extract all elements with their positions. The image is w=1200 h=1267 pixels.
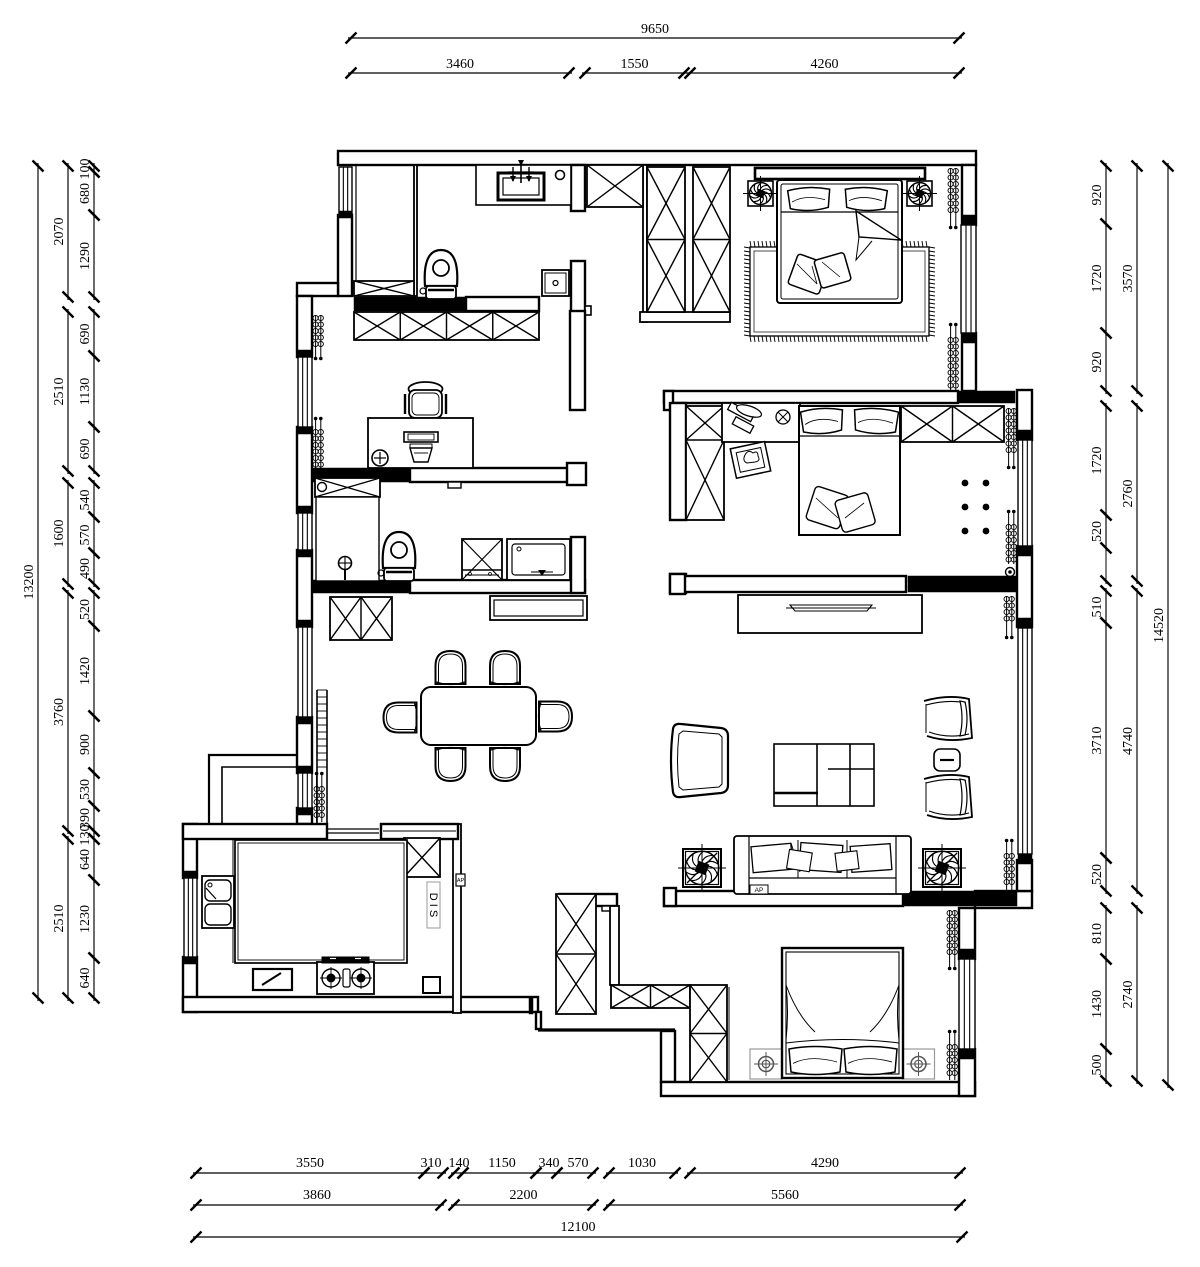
svg-text:520: 520 [1090,521,1105,542]
svg-text:9650: 9650 [641,22,669,37]
svg-text:520: 520 [1090,864,1105,885]
svg-text:2510: 2510 [52,378,67,406]
svg-text:3760: 3760 [52,698,67,726]
svg-text:1150: 1150 [488,1156,515,1171]
svg-text:920: 920 [1090,185,1105,206]
svg-text:2510: 2510 [52,905,67,933]
svg-text:500: 500 [1090,1055,1105,1076]
svg-text:1550: 1550 [621,57,649,72]
svg-text:D I S: D I S [427,893,439,917]
svg-text:1600: 1600 [52,520,67,548]
svg-text:680: 680 [78,183,93,204]
svg-text:3550: 3550 [296,1156,324,1171]
svg-text:570: 570 [568,1156,589,1171]
svg-text:AP: AP [755,887,764,894]
svg-text:14520: 14520 [1152,608,1167,643]
svg-text:310: 310 [421,1156,442,1171]
svg-text:2760: 2760 [1121,480,1136,508]
svg-text:1030: 1030 [628,1156,656,1171]
svg-text:900: 900 [78,734,93,755]
svg-text:3860: 3860 [303,1188,331,1203]
svg-text:490: 490 [78,558,93,579]
svg-text:3570: 3570 [1121,265,1136,293]
svg-text:1720: 1720 [1090,265,1105,293]
svg-text:1420: 1420 [78,657,93,685]
svg-text:4290: 4290 [811,1156,839,1171]
svg-text:5560: 5560 [771,1188,799,1203]
svg-text:340: 340 [539,1156,560,1171]
svg-text:AP: AP [457,878,465,884]
svg-text:690: 690 [78,439,93,460]
svg-text:13200: 13200 [22,565,37,600]
svg-text:3460: 3460 [446,57,474,72]
svg-text:690: 690 [78,324,93,345]
svg-text:640: 640 [78,968,93,989]
svg-text:520: 520 [78,599,93,620]
svg-text:810: 810 [1090,923,1105,944]
svg-text:530: 530 [78,779,93,800]
svg-text:570: 570 [78,525,93,546]
svg-text:1290: 1290 [78,242,93,270]
svg-text:2070: 2070 [52,218,67,246]
svg-text:1130: 1130 [78,378,93,405]
svg-text:3710: 3710 [1090,727,1105,755]
svg-text:510: 510 [1090,597,1105,618]
svg-text:2200: 2200 [510,1188,538,1203]
svg-text:640: 640 [78,849,93,870]
svg-text:1430: 1430 [1090,990,1105,1018]
svg-text:4740: 4740 [1121,727,1136,755]
svg-text:1720: 1720 [1090,447,1105,475]
svg-text:4260: 4260 [811,57,839,72]
svg-text:12100: 12100 [561,1220,596,1235]
svg-text:2740: 2740 [1121,981,1136,1009]
svg-text:920: 920 [1090,352,1105,373]
svg-text:540: 540 [78,490,93,511]
svg-text:1230: 1230 [78,905,93,933]
